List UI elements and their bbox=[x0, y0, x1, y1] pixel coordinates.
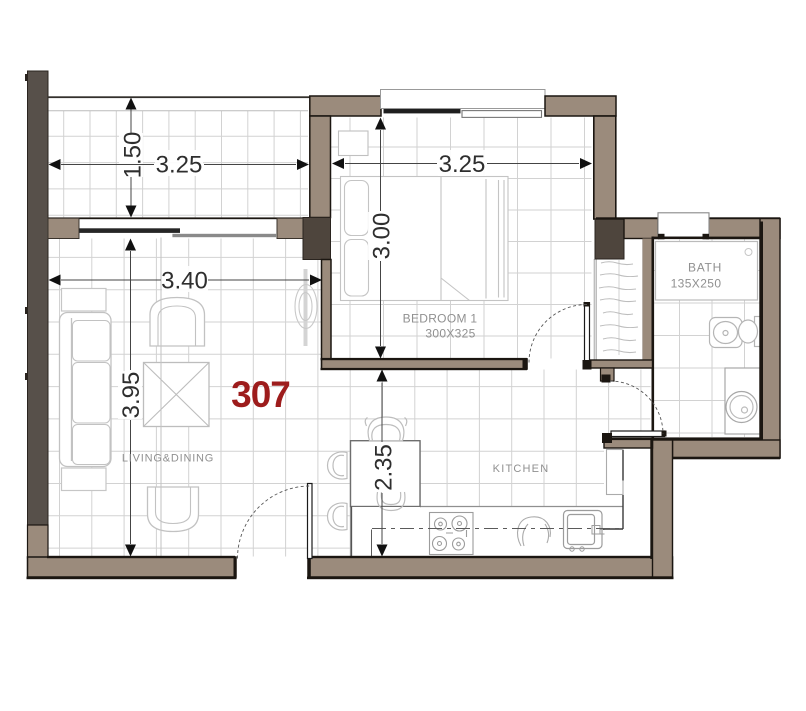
svg-text:307: 307 bbox=[231, 374, 290, 415]
svg-text:3.25: 3.25 bbox=[156, 152, 203, 179]
svg-text:300X325: 300X325 bbox=[425, 327, 475, 341]
svg-text:3.25: 3.25 bbox=[439, 151, 486, 178]
svg-text:3.95: 3.95 bbox=[118, 372, 145, 419]
svg-text:3.40: 3.40 bbox=[161, 268, 208, 295]
svg-text:LIVING&DINING: LIVING&DINING bbox=[122, 453, 214, 465]
svg-text:1.50: 1.50 bbox=[120, 132, 147, 179]
svg-text:3.00: 3.00 bbox=[369, 213, 396, 260]
svg-text:BEDROOM 1: BEDROOM 1 bbox=[403, 312, 478, 326]
svg-text:135X250: 135X250 bbox=[671, 277, 722, 291]
svg-text:BATH: BATH bbox=[688, 261, 722, 275]
svg-text:KITCHEN: KITCHEN bbox=[493, 463, 550, 475]
svg-text:2.35: 2.35 bbox=[371, 444, 398, 491]
